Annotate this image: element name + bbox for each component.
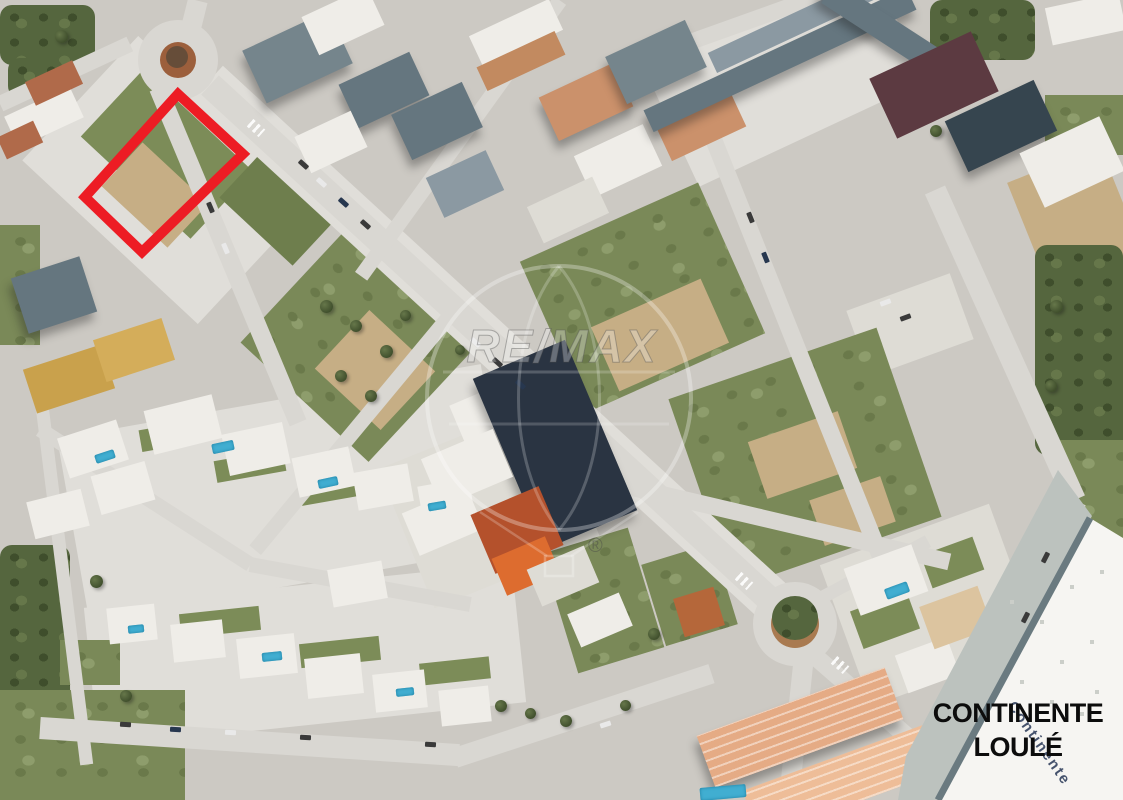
car	[300, 735, 311, 741]
tree	[620, 700, 631, 711]
skylight	[1020, 680, 1024, 684]
swimming-pool	[700, 784, 747, 800]
car	[120, 722, 131, 728]
car	[425, 742, 436, 748]
skylight	[1090, 640, 1094, 644]
villa	[170, 619, 226, 662]
tree-cluster	[0, 5, 95, 65]
roundabout-tree	[166, 46, 188, 68]
tree	[495, 700, 507, 712]
tree	[350, 320, 362, 332]
skylight	[1070, 585, 1074, 589]
tree	[930, 125, 942, 137]
tree	[335, 370, 347, 382]
villa	[304, 653, 364, 699]
skylight	[1010, 600, 1014, 604]
roundabout-trees	[772, 596, 818, 640]
satellite-map: Continente	[0, 0, 1123, 800]
tree	[648, 628, 660, 640]
building	[1045, 0, 1123, 45]
skylight	[1060, 660, 1064, 664]
skylight	[1100, 570, 1104, 574]
car	[170, 727, 181, 733]
tree	[560, 715, 572, 727]
skylight	[1095, 690, 1099, 694]
car	[599, 720, 611, 728]
tree	[380, 345, 393, 358]
tree	[90, 575, 103, 588]
tree	[120, 690, 132, 702]
villa	[438, 685, 491, 726]
skylight	[1040, 620, 1044, 624]
tree	[55, 30, 68, 43]
location-caption: CONTINENTE LOULÉ	[918, 696, 1118, 764]
construction-site	[93, 318, 175, 382]
caption-line-2: LOULÉ	[918, 730, 1118, 764]
tree	[455, 345, 465, 355]
tree	[400, 310, 411, 321]
tree	[1050, 300, 1063, 313]
car	[225, 730, 236, 736]
tree	[365, 390, 377, 402]
tree	[320, 300, 333, 313]
tree	[1045, 380, 1057, 392]
tree	[525, 708, 536, 719]
caption-line-1: CONTINENTE	[918, 696, 1118, 730]
villa	[106, 604, 158, 645]
swimming-pool	[128, 624, 145, 634]
